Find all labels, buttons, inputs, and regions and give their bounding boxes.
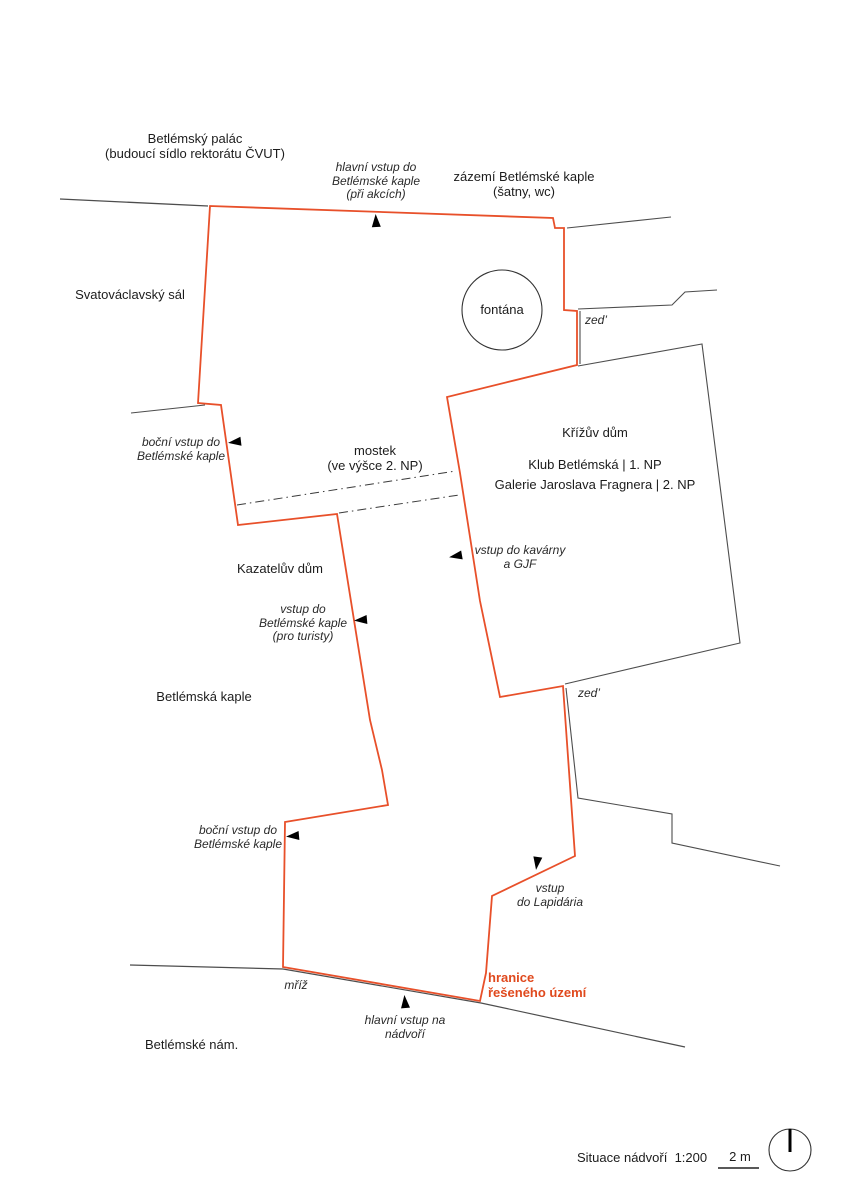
label-vstup-lapidarium: vstup do Lapidária	[517, 882, 583, 909]
wall-line-top-right	[567, 217, 671, 228]
label-hlavni-vstup-kaple: hlavní vstup do Betlémské kaple (při akc…	[332, 161, 420, 202]
label-galerie-fragnera: Galerie Jaroslava Fragnera | 2. NP	[495, 478, 696, 493]
label-fontana: fontána	[480, 303, 523, 318]
entrance-arrow-icon-side-bottom	[286, 831, 300, 841]
label-klub-betlemska: Klub Betlémská | 1. NP	[528, 458, 661, 473]
legend-title: Situace nádvoří 1:200	[577, 1151, 707, 1166]
site-plan-canvas: Betlémský palác (budoucí sídlo rektorátu…	[0, 0, 849, 1200]
label-zed-top: zed’	[585, 314, 607, 328]
label-zed-bottom: zed’	[578, 687, 600, 701]
label-betlemska-kaple: Betlémská kaple	[156, 690, 251, 705]
entrance-arrow-icon-tourists	[354, 615, 368, 625]
label-mostek: mostek (ve výšce 2. NP)	[327, 444, 422, 473]
legend-scale-label: 2 m	[729, 1150, 751, 1165]
wall-line-right-upper	[578, 290, 717, 309]
label-krizuv-dum: Křížův dům	[562, 426, 628, 441]
entrance-arrow-icon-side-top	[228, 437, 242, 448]
label-hranice-reseneho-uzemi: hranice řešeného území	[488, 970, 586, 1000]
label-zazemi: zázemí Betlémské kaple (šatny, wc)	[454, 170, 595, 199]
street-line-top-left	[60, 199, 208, 206]
mostek-dashed-line-lower	[339, 495, 459, 513]
label-mriz: mříž	[284, 979, 307, 993]
mostek-dashed-line-upper	[237, 471, 456, 505]
krizuv-dum-outline	[565, 344, 740, 684]
label-svatovaclavsky-sal: Svatováclavský sál	[75, 288, 185, 303]
wall-zed-bottom	[566, 688, 780, 866]
label-bocni-vstup-top: boční vstup do Betlémské kaple	[137, 436, 225, 463]
label-kazateluv-dum: Kazatelův dům	[237, 562, 323, 577]
wall-line-left-middle	[131, 405, 205, 413]
label-bocni-vstup-bottom: boční vstup do Betlémské kaple	[194, 824, 282, 851]
label-betlemsky-palac: Betlémský palác (budoucí sídlo rektorátu…	[105, 132, 285, 161]
entrance-arrow-icon-cafe	[448, 551, 462, 562]
entrance-arrow-icon-lapidarium	[532, 856, 543, 870]
label-hlavni-vstup-nadvori: hlavní vstup na nádvoří	[365, 1014, 446, 1041]
entrance-arrow-icon-courtyard	[400, 995, 410, 1009]
label-betlemske-nam: Betlémské nám.	[145, 1038, 238, 1053]
entrance-arrow-icon-main-chapel	[371, 214, 381, 227]
legend-scale-ratio: 1:200	[675, 1150, 708, 1165]
north-indicator-icon	[769, 1129, 811, 1171]
label-vstup-kavarna: vstup do kavárny a GJF	[475, 544, 566, 571]
label-vstup-turiste: vstup do Betlémské kaple (pro turisty)	[259, 603, 347, 644]
